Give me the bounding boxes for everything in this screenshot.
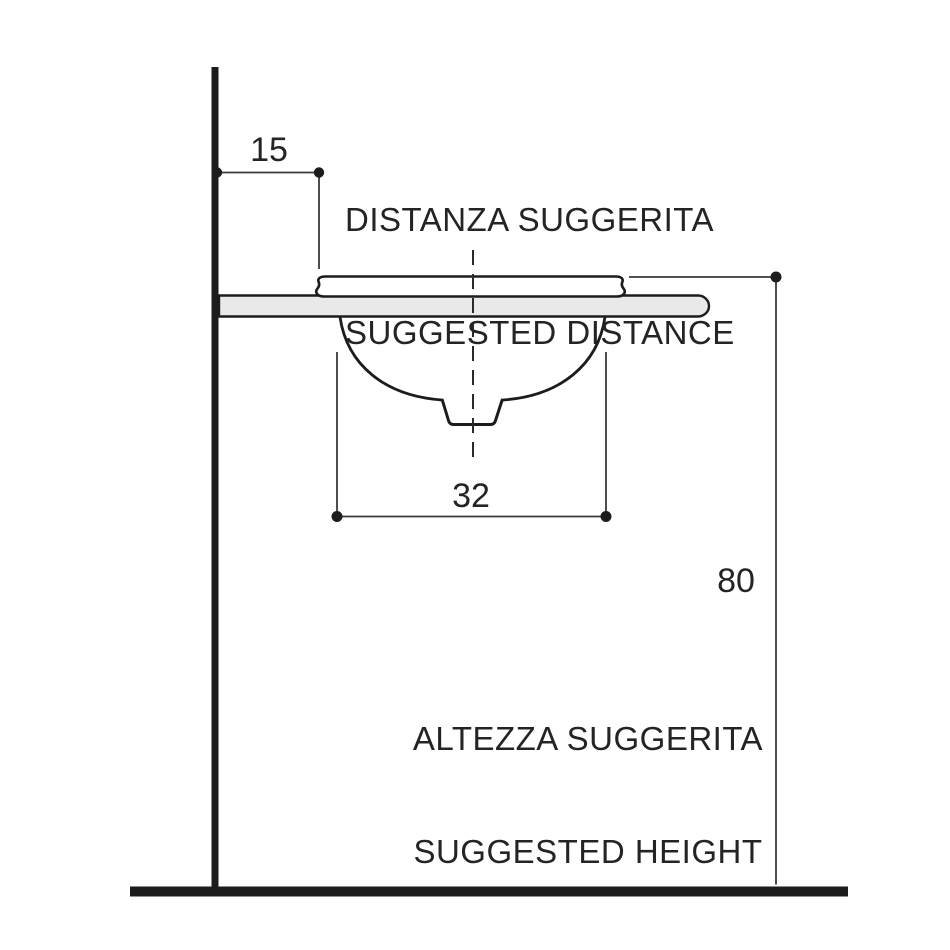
dim32-dot-right: [601, 511, 612, 522]
wall-line: [212, 67, 219, 888]
dim80-dot-top: [771, 272, 782, 283]
dim32-dot-left: [332, 511, 343, 522]
distance-label-english: SUGGESTED DISTANCE: [345, 314, 735, 352]
height-label-italian: ALTEZZA SUGGERITA: [408, 720, 768, 758]
dimension-value-80: 80: [706, 562, 766, 601]
distance-label-block: DISTANZA SUGGERITA SUGGESTED DISTANCE: [345, 126, 735, 426]
dimension-value-15: 15: [239, 131, 299, 170]
height-label-english: SUGGESTED HEIGHT: [408, 833, 768, 871]
dim15-dot-rim: [314, 167, 324, 177]
height-label-block: ALTEZZA SUGGERITA SUGGESTED HEIGHT: [408, 645, 768, 945]
dimension-value-32: 32: [441, 477, 501, 516]
distance-label-italian: DISTANZA SUGGERITA: [345, 201, 735, 239]
diagram-canvas: 15 DISTANZA SUGGERITA SUGGESTED DISTANCE…: [0, 0, 950, 950]
